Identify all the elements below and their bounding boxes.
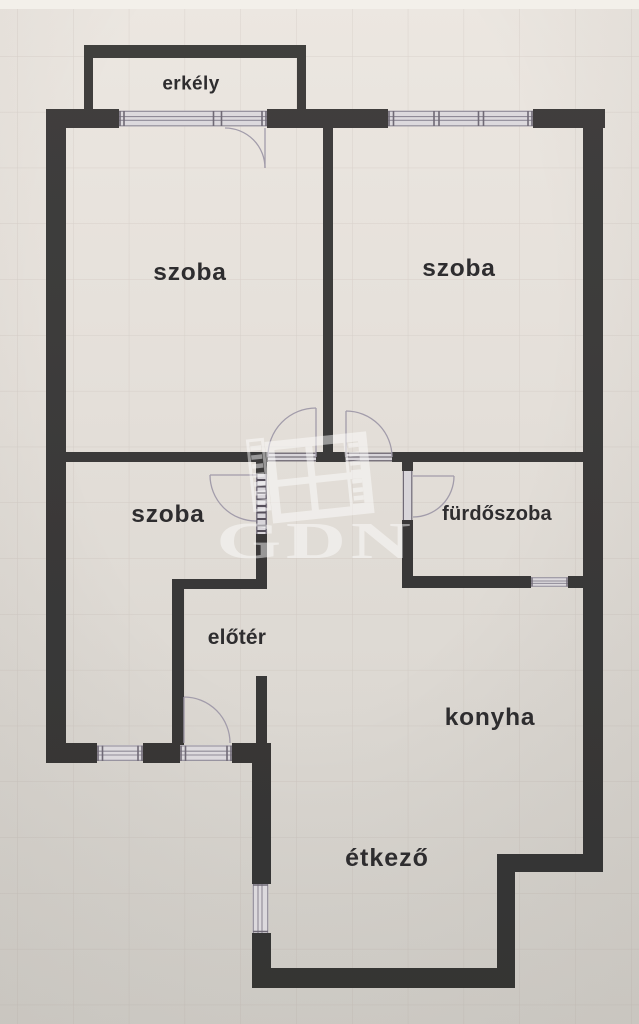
svg-text:szoba: szoba — [153, 259, 226, 286]
svg-text:szoba: szoba — [422, 255, 495, 282]
svg-text:GDN: GDN — [216, 512, 415, 570]
svg-text:étkező: étkező — [345, 844, 429, 872]
svg-text:fürdőszoba: fürdőszoba — [442, 503, 552, 525]
svg-text:konyha: konyha — [445, 704, 536, 731]
svg-text:előtér: előtér — [208, 626, 266, 649]
svg-text:erkély: erkély — [162, 74, 219, 95]
svg-text:szoba: szoba — [131, 501, 204, 528]
